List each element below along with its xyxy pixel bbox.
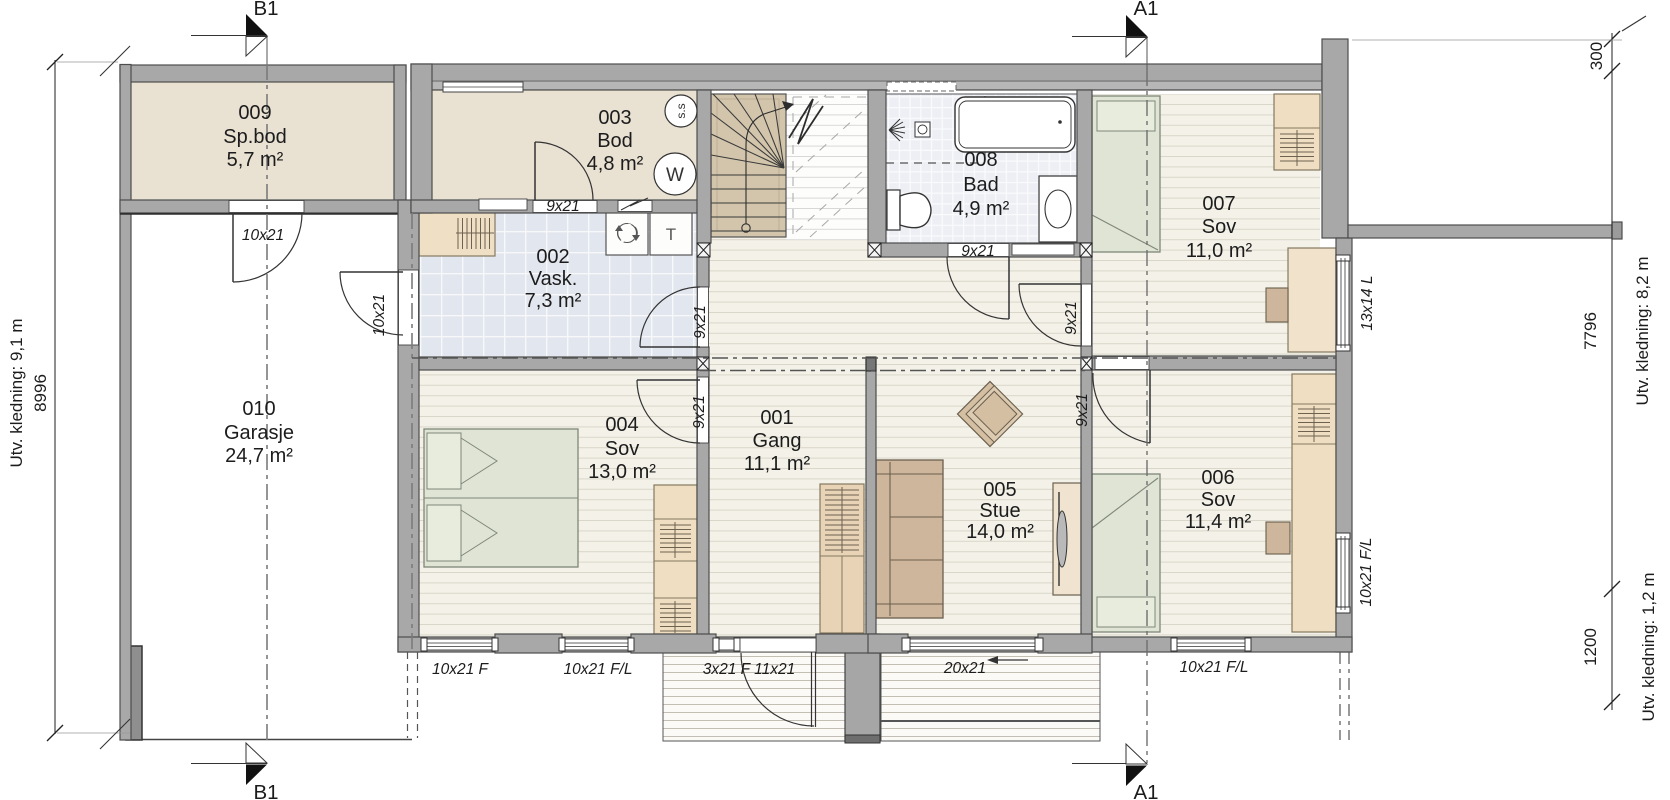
svg-text:W: W	[666, 165, 684, 186]
svg-text:009: 009	[238, 102, 271, 124]
svg-text:14,0 m²: 14,0 m²	[966, 521, 1034, 543]
svg-text:s.s: s.s	[674, 103, 688, 118]
svg-text:Utv. kledning: 8,2 m: Utv. kledning: 8,2 m	[1633, 257, 1652, 406]
svg-text:13,0 m²: 13,0 m²	[588, 461, 656, 483]
svg-text:Vask.: Vask.	[529, 268, 578, 290]
svg-text:10x21 F: 10x21 F	[432, 661, 490, 678]
svg-text:1200: 1200	[1581, 628, 1600, 666]
svg-text:008: 008	[964, 149, 997, 171]
svg-text:4,8 m²: 4,8 m²	[587, 153, 644, 175]
svg-text:9x21: 9x21	[691, 395, 708, 429]
svg-text:010: 010	[242, 398, 275, 420]
svg-text:T: T	[666, 225, 676, 244]
svg-text:10x21 F/L: 10x21 F/L	[1180, 659, 1249, 676]
svg-text:003: 003	[598, 107, 631, 129]
svg-text:Garasje: Garasje	[224, 422, 294, 444]
svg-text:007: 007	[1202, 193, 1235, 215]
svg-text:11,1 m²: 11,1 m²	[744, 453, 811, 475]
svg-text:Sov: Sov	[605, 438, 639, 460]
svg-text:002: 002	[536, 246, 569, 268]
svg-text:4,9 m²: 4,9 m²	[953, 198, 1010, 220]
svg-text:Sov: Sov	[1202, 216, 1236, 238]
svg-text:Sov: Sov	[1201, 489, 1235, 511]
svg-text:11,4 m²: 11,4 m²	[1185, 511, 1252, 533]
svg-text:A1: A1	[1133, 0, 1158, 20]
svg-text:B1: B1	[253, 0, 278, 20]
svg-text:10x21: 10x21	[242, 227, 284, 244]
svg-text:300: 300	[1587, 42, 1606, 70]
svg-text:B1: B1	[253, 781, 278, 800]
svg-text:8996: 8996	[31, 374, 50, 412]
svg-text:13x14 L: 13x14 L	[1359, 275, 1376, 330]
svg-text:11,0 m²: 11,0 m²	[1186, 240, 1253, 262]
svg-text:24,7 m²: 24,7 m²	[225, 445, 293, 467]
svg-text:9x21: 9x21	[961, 243, 995, 260]
svg-text:Utv. kledning: 9,1 m: Utv. kledning: 9,1 m	[7, 319, 26, 468]
svg-text:Stue: Stue	[979, 500, 1020, 522]
svg-text:3x21 F 11x21: 3x21 F 11x21	[703, 661, 796, 678]
svg-text:10x21: 10x21	[371, 294, 388, 336]
svg-text:20x21: 20x21	[943, 660, 986, 677]
svg-text:9x21: 9x21	[692, 305, 709, 339]
svg-text:006: 006	[1201, 467, 1234, 489]
svg-text:Sp.bod: Sp.bod	[223, 126, 286, 148]
svg-text:Utv. kledning: 1,2 m: Utv. kledning: 1,2 m	[1639, 573, 1658, 722]
svg-text:9x21: 9x21	[546, 198, 580, 215]
svg-text:005: 005	[983, 479, 1016, 501]
svg-text:10x21 F/L: 10x21 F/L	[564, 661, 633, 678]
svg-text:001: 001	[760, 407, 793, 429]
svg-text:7,3 m²: 7,3 m²	[525, 290, 582, 312]
svg-text:004: 004	[605, 414, 638, 436]
svg-text:Gang: Gang	[753, 430, 802, 452]
svg-text:9x21: 9x21	[1063, 301, 1080, 335]
svg-text:A1: A1	[1133, 781, 1158, 800]
svg-text:5,7 m²: 5,7 m²	[227, 149, 284, 171]
svg-text:10x21 F/L: 10x21 F/L	[1358, 538, 1375, 607]
svg-text:Bod: Bod	[597, 130, 633, 152]
svg-text:7796: 7796	[1581, 312, 1600, 350]
svg-text:9x21: 9x21	[1074, 393, 1091, 427]
svg-text:Bad: Bad	[963, 174, 999, 196]
